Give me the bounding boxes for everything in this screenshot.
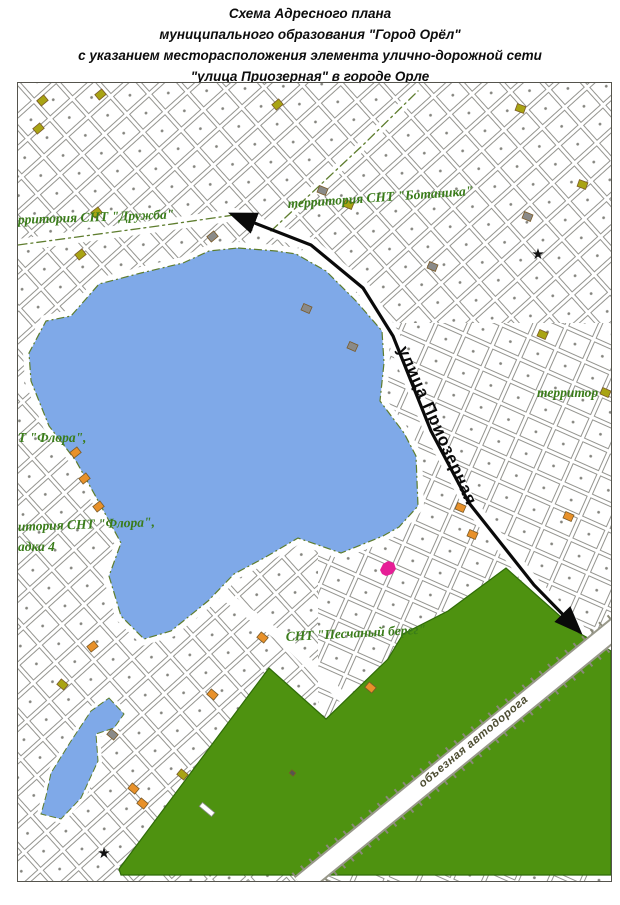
map-canvas: объезная автодорога ★★ улица Приозерная … <box>17 82 612 882</box>
label-territor-fragment: территор <box>537 385 598 400</box>
map-svg: объезная автодорога ★★ улица Приозерная … <box>18 83 611 881</box>
title-line-2: муниципального образования "Город Орёл" <box>0 24 620 45</box>
label-snt-flora-short: Т "Флора", <box>18 430 86 445</box>
label-snt-flora-line2: адка 4 <box>18 539 55 554</box>
title-line-1: Схема Адресного плана <box>0 3 620 24</box>
star-marker-icon: ★ <box>97 845 110 862</box>
address-plan-scheme: Схема Адресного плана муниципального обр… <box>0 0 620 905</box>
title-line-3: с указанием месторасположения элемента у… <box>0 45 620 66</box>
page-title: Схема Адресного плана муниципального обр… <box>0 3 620 87</box>
star-marker-icon: ★ <box>531 246 544 263</box>
